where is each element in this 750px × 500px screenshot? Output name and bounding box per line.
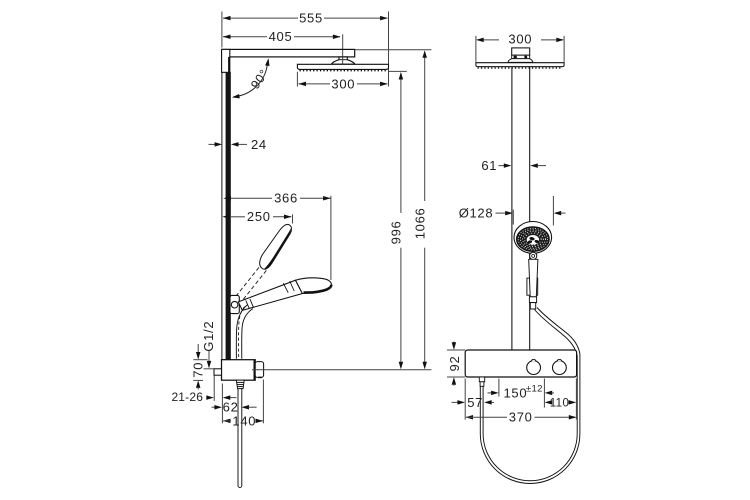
svg-text:140: 140 [232,413,256,428]
svg-text:300: 300 [508,31,532,46]
svg-text:250: 250 [247,209,271,224]
svg-text:Ø128: Ø128 [459,205,494,220]
svg-text:150: 150 [504,385,528,400]
svg-text:555: 555 [299,11,323,26]
svg-text:70: 70 [190,362,205,378]
svg-text:±12: ±12 [526,384,543,395]
svg-text:G1/2: G1/2 [201,321,216,352]
svg-text:92: 92 [447,356,462,372]
svg-text:21-26: 21-26 [171,390,203,404]
svg-text:300: 300 [331,76,355,91]
svg-text:370: 370 [509,410,533,425]
svg-text:366: 366 [274,191,298,206]
svg-text:405: 405 [269,29,293,44]
svg-text:61: 61 [481,158,497,173]
svg-text:110: 110 [550,397,570,409]
svg-text:57: 57 [467,395,483,410]
svg-text:996: 996 [389,221,404,245]
svg-text:24: 24 [251,137,267,152]
svg-text:1066: 1066 [412,208,427,240]
